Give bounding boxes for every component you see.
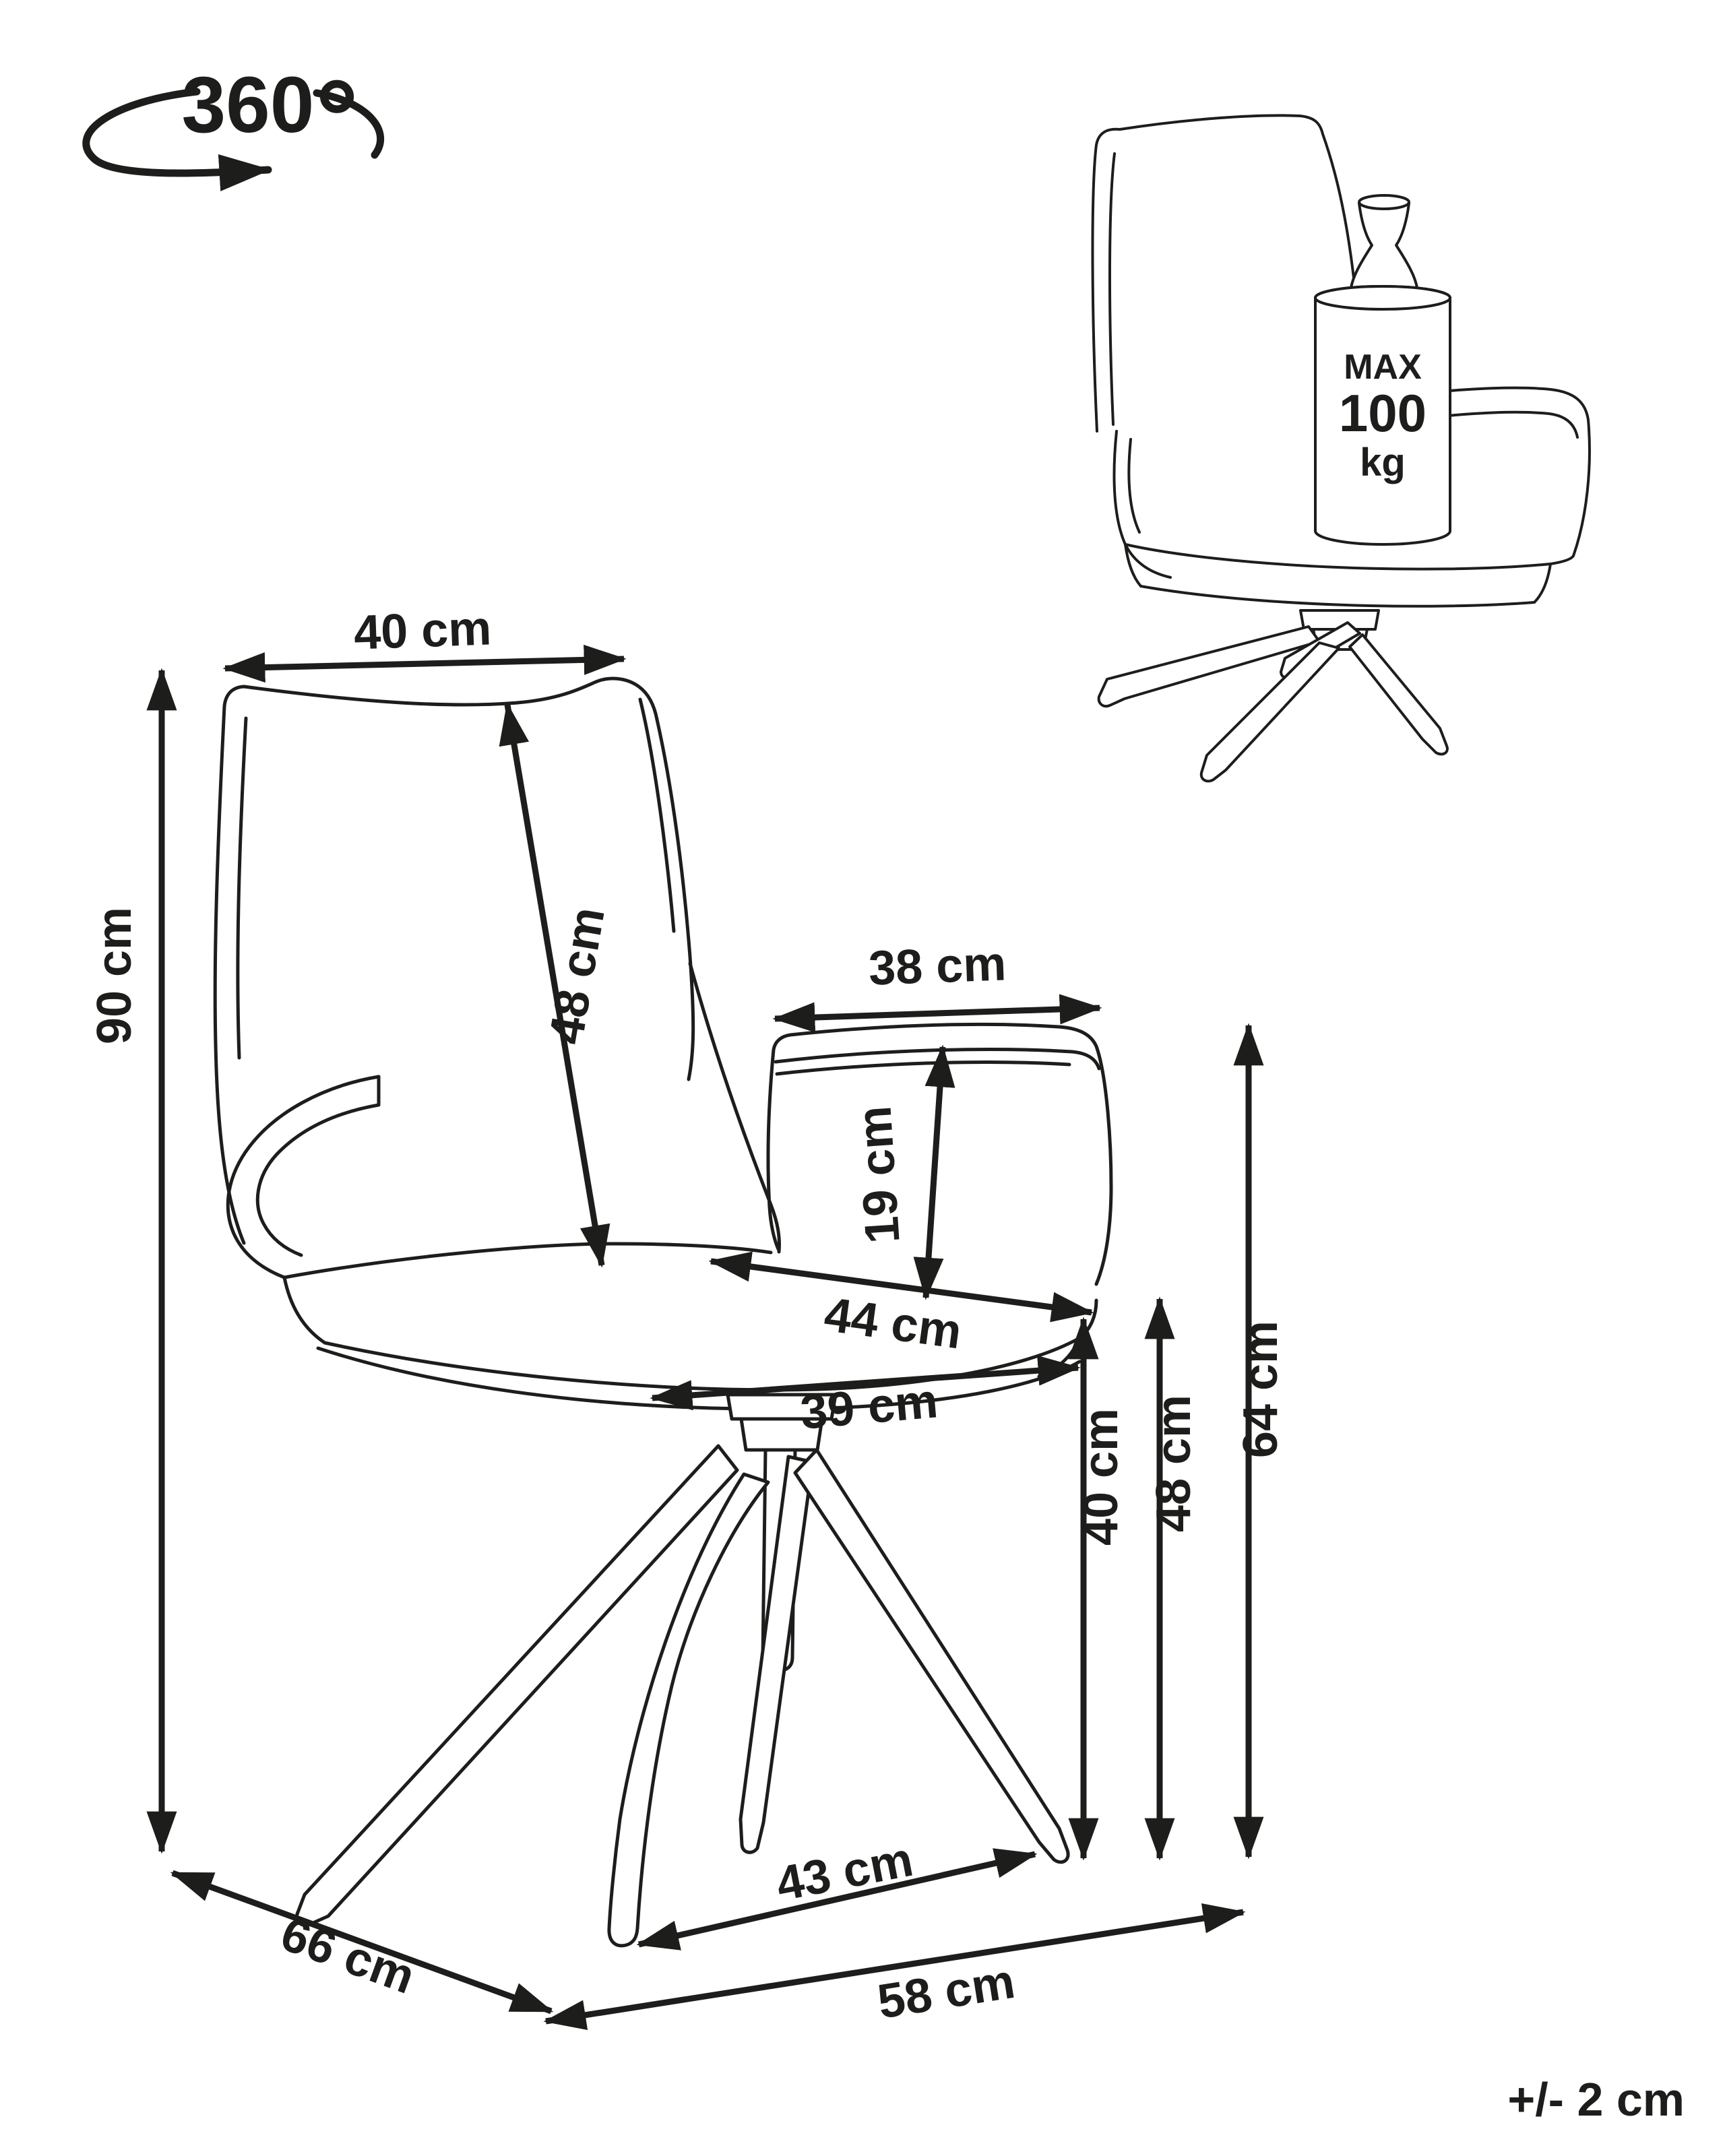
seat-depth-label: 44 cm bbox=[821, 1288, 965, 1360]
weight-cylinder-rim bbox=[1315, 286, 1450, 309]
armrest-length-label: 38 cm bbox=[868, 937, 1007, 995]
small-seat-left-join bbox=[1125, 544, 1141, 586]
dimension-labels: 40 cm 48 cm 90 cm 38 cm 19 cm 44 cm 39 c… bbox=[88, 601, 1288, 2029]
right-armrest-seam-1 bbox=[776, 1049, 1099, 1069]
right-armrest-seam-2 bbox=[777, 1062, 1069, 1074]
seat-height-front-label: 40 cm bbox=[1074, 1408, 1128, 1546]
seat-front-width-label: 39 cm bbox=[798, 1374, 940, 1439]
degree-symbol: ° bbox=[315, 57, 358, 178]
seat-back-edge bbox=[284, 1244, 771, 1277]
small-seat-lower-edge bbox=[1141, 586, 1534, 606]
seat-height-rear-label: 48 cm bbox=[1147, 1395, 1201, 1532]
dim-arrow-armrest-length bbox=[775, 1008, 1100, 1019]
weight-max-icon: MAX 100 kg bbox=[1315, 195, 1450, 544]
left-armrest-inner bbox=[257, 1105, 379, 1255]
armrest-height-above-seat-label: 19 cm bbox=[847, 1104, 910, 1245]
small-seat-front-edge bbox=[1125, 544, 1573, 569]
leg-front-right bbox=[795, 1450, 1068, 1862]
rotation-360-icon: 360 ° bbox=[86, 57, 381, 178]
dimension-arrows bbox=[162, 659, 1249, 2021]
small-backrest-seam bbox=[1110, 154, 1115, 424]
backrest-right-edge bbox=[657, 720, 693, 1079]
small-seat-right-join bbox=[1534, 564, 1550, 602]
backrest-right-seam bbox=[640, 699, 674, 931]
backrest-width-label: 40 cm bbox=[353, 601, 493, 660]
weight-capacity-chair-icon: MAX 100 kg bbox=[1092, 115, 1589, 781]
armrest-height-floor-label: 64 cm bbox=[1234, 1321, 1288, 1458]
weight-knob-top bbox=[1359, 195, 1409, 209]
backrest-height-label: 48 cm bbox=[539, 903, 615, 1048]
rotation-value-label: 360 bbox=[182, 61, 315, 150]
base-depth-label: 66 cm bbox=[274, 1907, 422, 2004]
weight-knob bbox=[1351, 203, 1417, 288]
tolerance-note: +/- 2 cm bbox=[1507, 2073, 1685, 2126]
weight-max-label: MAX bbox=[1344, 348, 1422, 387]
small-left-armrest-seam bbox=[1129, 439, 1139, 532]
total-height-label: 90 cm bbox=[88, 907, 142, 1044]
small-leg-front-right bbox=[1350, 635, 1447, 754]
dim-arrow-armrest-height-above-seat bbox=[926, 1047, 943, 1298]
main-chair-drawing bbox=[215, 678, 1111, 1946]
backrest-top-edge bbox=[224, 678, 657, 720]
backrest-left-seam bbox=[238, 718, 246, 1058]
left-armrest-outer bbox=[228, 1077, 379, 1277]
weight-value-label: 100 bbox=[1339, 383, 1426, 443]
weight-unit-label: kg bbox=[1360, 441, 1406, 484]
dim-arrow-backrest-width bbox=[225, 659, 624, 668]
dimension-diagram-page: 360 ° MAX 100 kg bbox=[0, 0, 1725, 2156]
backrest-to-seat-curve bbox=[690, 963, 780, 1252]
chair-dimension-diagram: 360 ° MAX 100 kg bbox=[0, 0, 1725, 2156]
small-left-armrest bbox=[1114, 431, 1170, 577]
